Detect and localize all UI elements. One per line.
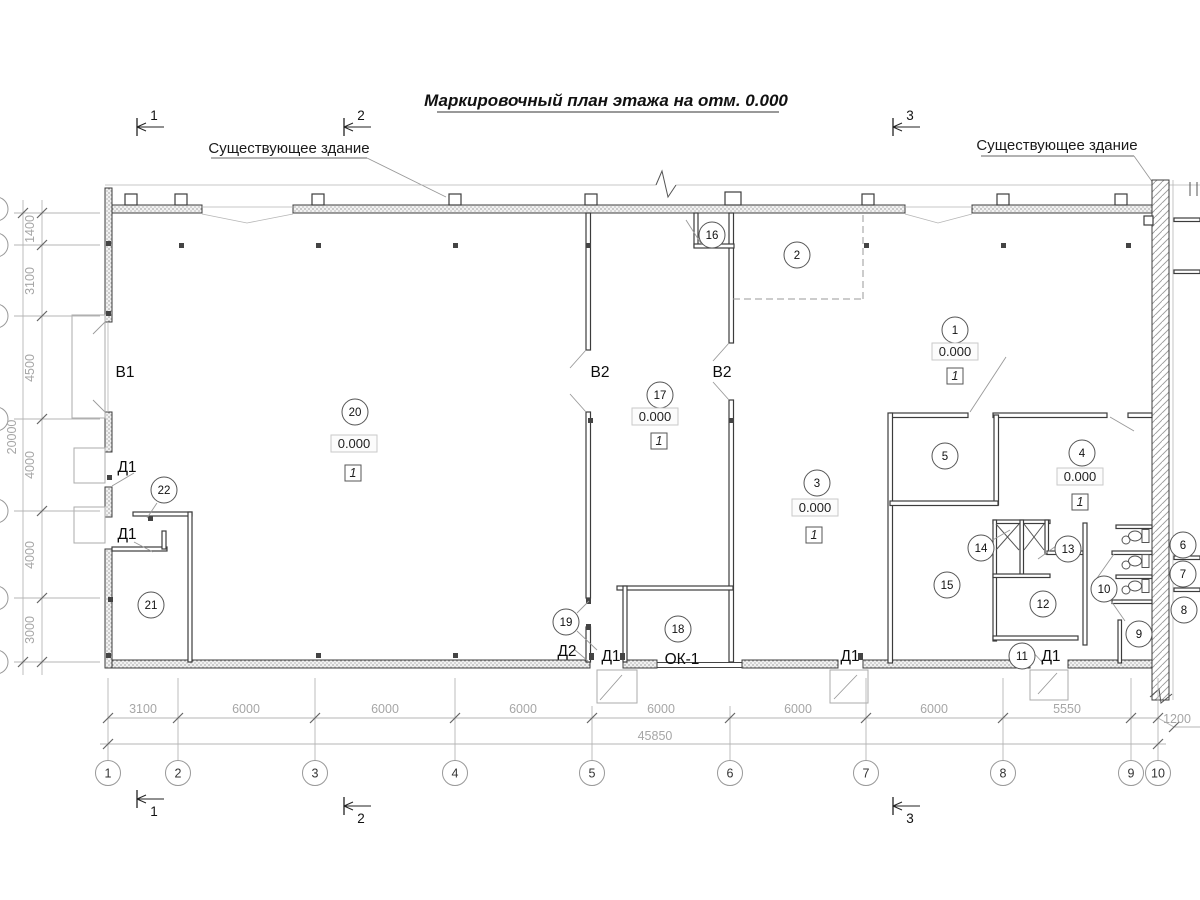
opening-label-д1: Д1 bbox=[117, 459, 136, 476]
dimension-total: 45850 bbox=[638, 729, 673, 743]
grid-bubble-1: 1 bbox=[96, 761, 121, 786]
grid-bubbles-layer: 12345678910 bbox=[96, 761, 1171, 786]
elevation-value: 0.000 bbox=[639, 409, 672, 424]
elevation-mark: 0.000 bbox=[932, 343, 978, 360]
dimension-lines-bottom bbox=[100, 678, 1200, 760]
grid-bubble-8: 8 bbox=[991, 761, 1016, 786]
section-marker-arrow bbox=[893, 123, 902, 127]
room-marker-13: 13 bbox=[1055, 536, 1081, 562]
room-marker-number: 16 bbox=[706, 230, 719, 242]
room-marker-number: 10 bbox=[1098, 584, 1111, 596]
opening-label-д1: Д1 bbox=[840, 648, 859, 665]
section-marker-3: 3 bbox=[893, 108, 920, 136]
section-marker-1: 1 bbox=[137, 790, 164, 819]
floor-type-number: 1 bbox=[811, 528, 818, 542]
room-marker-1: 1 bbox=[942, 317, 968, 343]
floor-type-badge: 1 bbox=[806, 527, 822, 543]
grid-bubble-number: 6 bbox=[727, 767, 734, 781]
room-marker-14: 14 bbox=[968, 535, 994, 561]
dimension-value: 6000 bbox=[509, 702, 537, 716]
dimension-value: 1200 bbox=[1163, 712, 1191, 726]
toilet-icon bbox=[1122, 530, 1149, 545]
section-marker-arrow bbox=[893, 127, 902, 131]
opening-label-ок-1: ОК-1 bbox=[665, 651, 700, 668]
opening-label-в1: В1 bbox=[116, 364, 135, 381]
room-marker-number: 5 bbox=[942, 451, 948, 463]
toilet-icon bbox=[1122, 555, 1149, 570]
floor-type-badge: 1 bbox=[651, 433, 667, 449]
dimension-value: 6000 bbox=[371, 702, 399, 716]
section-marker-2: 2 bbox=[344, 797, 371, 826]
dimension-value: 4500 bbox=[23, 354, 37, 382]
opening-label-в2: В2 bbox=[713, 364, 732, 381]
grid-bubble-number: 10 bbox=[1151, 767, 1165, 781]
page-title: Маркировочный план этажа на отм. 0.000 bbox=[424, 91, 788, 110]
dimension-value: 3000 bbox=[23, 616, 37, 644]
dimension-value: 5550 bbox=[1053, 702, 1081, 716]
opening-label-д1: Д1 bbox=[117, 526, 136, 543]
room-marker-number: 14 bbox=[975, 543, 988, 555]
opening-label-в2: В2 bbox=[591, 364, 610, 381]
room-marker-6: 6 bbox=[1170, 532, 1196, 558]
dimension-value: 3100 bbox=[23, 267, 37, 295]
room-marker-number: 9 bbox=[1136, 629, 1142, 641]
section-marker-arrow bbox=[137, 795, 146, 799]
columns bbox=[125, 192, 1127, 205]
room-marker-3: 3 bbox=[804, 470, 830, 496]
room-marker-number: 17 bbox=[654, 390, 667, 402]
room-marker-21: 21 bbox=[138, 592, 164, 618]
section-marker-number: 1 bbox=[150, 108, 158, 123]
section-marker-1: 1 bbox=[137, 108, 164, 136]
existing-building-label-left: Существующее здание bbox=[208, 140, 446, 197]
floor-badges-layer: 11111 bbox=[345, 368, 1088, 543]
room-marker-number: 13 bbox=[1062, 544, 1075, 556]
room-marker-number: 1 bbox=[952, 325, 958, 337]
elevation-mark: 0.000 bbox=[331, 435, 377, 452]
room-marker-12: 12 bbox=[1030, 591, 1056, 617]
existing-building-label-right: Существующее здание bbox=[976, 137, 1163, 197]
pilaster-squares bbox=[106, 241, 1131, 660]
room-marker-19: 19 bbox=[553, 609, 579, 635]
room-marker-8: 8 bbox=[1171, 597, 1197, 623]
floor-type-badge: 1 bbox=[345, 465, 361, 481]
section-marker-arrow bbox=[344, 123, 353, 127]
room-marker-number: 2 bbox=[794, 250, 800, 262]
room-marker-number: 11 bbox=[1016, 651, 1028, 663]
room-marker-number: 12 bbox=[1037, 599, 1050, 611]
room-marker-10: 10 bbox=[1091, 576, 1117, 602]
opening-label-д2: Д2 bbox=[557, 643, 576, 660]
floor-type-number: 1 bbox=[350, 466, 357, 480]
grid-bubble-number: 2 bbox=[175, 767, 182, 781]
room-marker-2: 2 bbox=[784, 242, 810, 268]
dimension-value: 6000 bbox=[647, 702, 675, 716]
room-marker-number: 15 bbox=[941, 580, 954, 592]
section-marker-arrow bbox=[344, 127, 353, 131]
dimension-value: 6000 bbox=[784, 702, 812, 716]
wall-openings bbox=[93, 207, 972, 668]
room-marker-9: 9 bbox=[1126, 621, 1152, 647]
section-marker-2: 2 bbox=[344, 108, 371, 136]
room-marker-number: 4 bbox=[1079, 448, 1086, 460]
dimension-value: 4000 bbox=[23, 451, 37, 479]
grid-bubble-number: 7 bbox=[863, 767, 870, 781]
dimension-value: 1400 bbox=[23, 215, 37, 243]
grid-bubble-number: 8 bbox=[1000, 767, 1007, 781]
section-marker-number: 2 bbox=[357, 108, 365, 123]
room-marker-number: 21 bbox=[145, 600, 158, 612]
section-marker-arrow bbox=[893, 802, 902, 806]
section-marker-arrow bbox=[137, 123, 146, 127]
floor-type-badge: 1 bbox=[1072, 494, 1088, 510]
grid-bubble-number: 1 bbox=[105, 767, 112, 781]
grid-bubble-6: 6 bbox=[718, 761, 743, 786]
room-marker-22: 22 bbox=[151, 477, 177, 503]
room-marker-number: 8 bbox=[1181, 605, 1187, 617]
existing-building-text-left: Существующее здание bbox=[208, 140, 369, 157]
room-marker-number: 20 bbox=[349, 407, 362, 419]
section-marker-number: 2 bbox=[357, 811, 365, 826]
room-marker-number: 7 bbox=[1180, 569, 1186, 581]
toilet-icon bbox=[1122, 580, 1149, 595]
section-marker-arrow bbox=[893, 806, 902, 810]
room-marker-20: 20 bbox=[342, 399, 368, 425]
break-symbol-top bbox=[656, 171, 676, 197]
toilet-fixtures bbox=[1122, 530, 1149, 595]
room-marker-number: 19 bbox=[560, 617, 573, 629]
room-marker-number: 6 bbox=[1180, 540, 1186, 552]
dimension-value: 3100 bbox=[129, 702, 157, 716]
door-glyph-topright bbox=[1190, 182, 1197, 196]
elevation-value: 0.000 bbox=[1064, 469, 1097, 484]
grid-bubble-2: 2 bbox=[166, 761, 191, 786]
dimension-value: 6000 bbox=[232, 702, 260, 716]
room-marker-17: 17 bbox=[647, 382, 673, 408]
section-marker-arrow bbox=[344, 802, 353, 806]
grid-bubble-10: 10 bbox=[1146, 761, 1171, 786]
elevation-mark: 0.000 bbox=[792, 499, 838, 516]
room-marker-number: 3 bbox=[814, 478, 820, 490]
grid-bubble-3: 3 bbox=[303, 761, 328, 786]
existing-building-text-right: Существующее здание bbox=[976, 137, 1137, 154]
floor-type-number: 1 bbox=[952, 369, 959, 383]
room-marker-number: 22 bbox=[158, 485, 171, 497]
grid-bubble-number: 4 bbox=[452, 767, 459, 781]
grid-bubble-4: 4 bbox=[443, 761, 468, 786]
elevation-value: 0.000 bbox=[939, 344, 972, 359]
elevation-value: 0.000 bbox=[799, 500, 832, 515]
elevation-mark: 0.000 bbox=[632, 408, 678, 425]
section-marker-arrow bbox=[344, 806, 353, 810]
dimension-value: 6000 bbox=[920, 702, 948, 716]
grid-bubble-number: 3 bbox=[312, 767, 319, 781]
section-marker-number: 3 bbox=[906, 811, 914, 826]
room-marker-16: 16 bbox=[699, 222, 725, 248]
section-marker-3: 3 bbox=[893, 797, 920, 826]
existing-building-wall bbox=[1150, 180, 1173, 703]
grid-bubble-number: 5 bbox=[589, 767, 596, 781]
section-marker-number: 1 bbox=[150, 804, 158, 819]
section-marker-number: 3 bbox=[906, 108, 914, 123]
floor-type-number: 1 bbox=[656, 434, 663, 448]
opening-label-д1: Д1 bbox=[601, 648, 620, 665]
room-marker-7: 7 bbox=[1170, 561, 1196, 587]
floor-plan-sheet: Маркировочный план этажа на отм. 0.000 С… bbox=[0, 0, 1200, 900]
sheet-title: Маркировочный план этажа на отм. 0.000 bbox=[424, 91, 788, 112]
dimension-total: 20000 bbox=[5, 420, 19, 455]
floor-type-badge: 1 bbox=[947, 368, 963, 384]
elevation-value: 0.000 bbox=[338, 436, 371, 451]
grid-bubble-9: 9 bbox=[1119, 761, 1144, 786]
room-marker-15: 15 bbox=[934, 572, 960, 598]
room-marker-18: 18 bbox=[665, 616, 691, 642]
opening-label-д1: Д1 bbox=[1041, 648, 1060, 665]
section-marker-arrow bbox=[137, 127, 146, 131]
grid-bubble-5: 5 bbox=[580, 761, 605, 786]
floor-type-number: 1 bbox=[1077, 495, 1084, 509]
existing-building-line bbox=[105, 171, 1200, 197]
grid-bubble-number: 9 bbox=[1128, 767, 1135, 781]
grid-bubble-7: 7 bbox=[854, 761, 879, 786]
dimension-value: 4000 bbox=[23, 541, 37, 569]
section-marker-arrow bbox=[137, 799, 146, 803]
room-marker-4: 4 bbox=[1069, 440, 1095, 466]
room-marker-number: 18 bbox=[672, 624, 685, 636]
room-marker-5: 5 bbox=[932, 443, 958, 469]
elevation-mark: 0.000 bbox=[1057, 468, 1103, 485]
room-marker-11: 11 bbox=[1009, 643, 1035, 669]
floor-plan-drawing: Маркировочный план этажа на отм. 0.000 С… bbox=[0, 0, 1200, 900]
